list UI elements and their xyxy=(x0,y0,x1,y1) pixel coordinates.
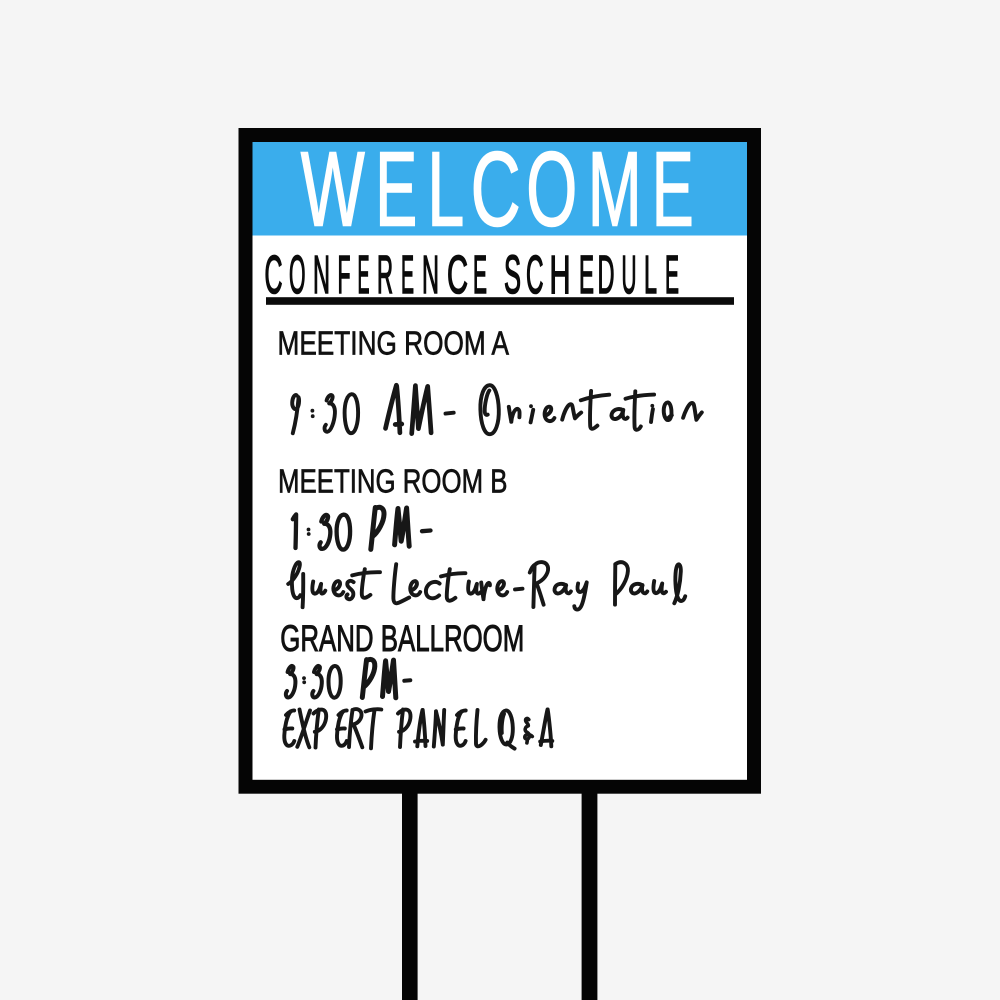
svg-text:N: N xyxy=(422,246,439,305)
svg-text:C: C xyxy=(471,131,521,249)
svg-text:S: S xyxy=(504,246,521,305)
svg-text:N: N xyxy=(313,246,330,305)
svg-text:L: L xyxy=(427,131,464,249)
svg-text:E: E xyxy=(665,246,679,305)
svg-text:MEETING ROOM A: MEETING ROOM A xyxy=(278,326,510,363)
svg-text:L: L xyxy=(644,246,657,305)
svg-text:GRAND BALLROOM: GRAND BALLROOM xyxy=(280,618,524,659)
svg-text:E: E xyxy=(401,246,414,305)
svg-text:D: D xyxy=(598,246,615,305)
svg-text:E: E xyxy=(358,246,370,305)
svg-text:W: W xyxy=(301,131,365,249)
svg-text:C: C xyxy=(526,246,544,305)
svg-text:E: E xyxy=(579,246,594,305)
svg-text:O: O xyxy=(526,131,577,249)
svg-text:F: F xyxy=(338,246,351,305)
svg-text:MEETING ROOM B: MEETING ROOM B xyxy=(278,464,508,501)
svg-text:E: E xyxy=(652,131,694,249)
svg-text:O: O xyxy=(289,246,306,305)
svg-text:R: R xyxy=(377,246,393,305)
svg-text:E: E xyxy=(473,246,487,305)
svg-text:E: E xyxy=(375,131,417,249)
svg-text:H: H xyxy=(550,246,571,305)
svg-text:M: M xyxy=(588,131,642,249)
svg-text:C: C xyxy=(447,246,468,305)
svg-text:U: U xyxy=(622,246,637,305)
svg-text:C: C xyxy=(265,246,283,305)
